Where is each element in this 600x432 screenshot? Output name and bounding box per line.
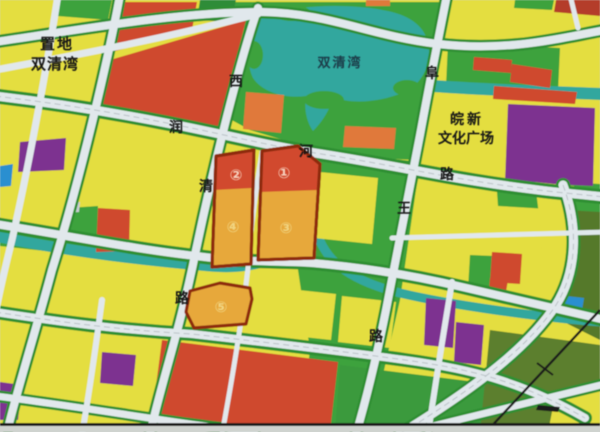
wanxin-label-line2: 文化广场 (438, 130, 494, 146)
road-char-he: 河 (299, 143, 313, 159)
road-char-wang: 王 (397, 200, 411, 216)
lot-1-number: ① (278, 165, 291, 182)
road-char-qing: 清 (199, 178, 213, 194)
zhidi-label-line1: 置地 (40, 35, 74, 53)
blue-patch-left (0, 164, 13, 187)
road-char-fu: 阜 (425, 65, 439, 81)
shore-orange-left (243, 92, 284, 133)
road-char-lu2: 路 (175, 290, 190, 306)
shore-orange-top (366, 0, 390, 6)
yellow-parcel-in-green-1 (314, 172, 378, 244)
board-frame-line (0, 423, 600, 426)
lot-5-number: ⑤ (215, 299, 228, 316)
wanxin-label-line1: 皖新 (450, 111, 484, 127)
lot-4-number: ④ (227, 219, 240, 236)
map-canvas: 置地 双清湾 双清湾 皖新 文化广场 润 河 路 西 清 路 阜 王 路 ① ②… (0, 0, 600, 432)
lot-3-number: ③ (280, 220, 293, 237)
purple-block-bottomleft-1 (100, 352, 136, 386)
yellow-parcel-in-green-2 (276, 288, 336, 340)
road-char-run: 润 (169, 119, 183, 135)
shore-orange-right (343, 126, 396, 149)
zhidi-label-line2: 双清湾 (31, 55, 79, 73)
lake-label: 双清湾 (317, 55, 362, 70)
lot-2-number: ② (230, 167, 243, 184)
purple-parcel-right (505, 104, 595, 186)
road-char-xi: 西 (229, 73, 243, 89)
purple-block-bottomright-2 (454, 322, 484, 365)
board-frame-gap (0, 426, 600, 432)
planning-map-photo: 置地 双清湾 双清湾 皖新 文化广场 润 河 路 西 清 路 阜 王 路 ① ②… (0, 0, 600, 432)
road-char-lu3: 路 (369, 328, 384, 344)
road-char-lu1: 路 (440, 166, 455, 182)
